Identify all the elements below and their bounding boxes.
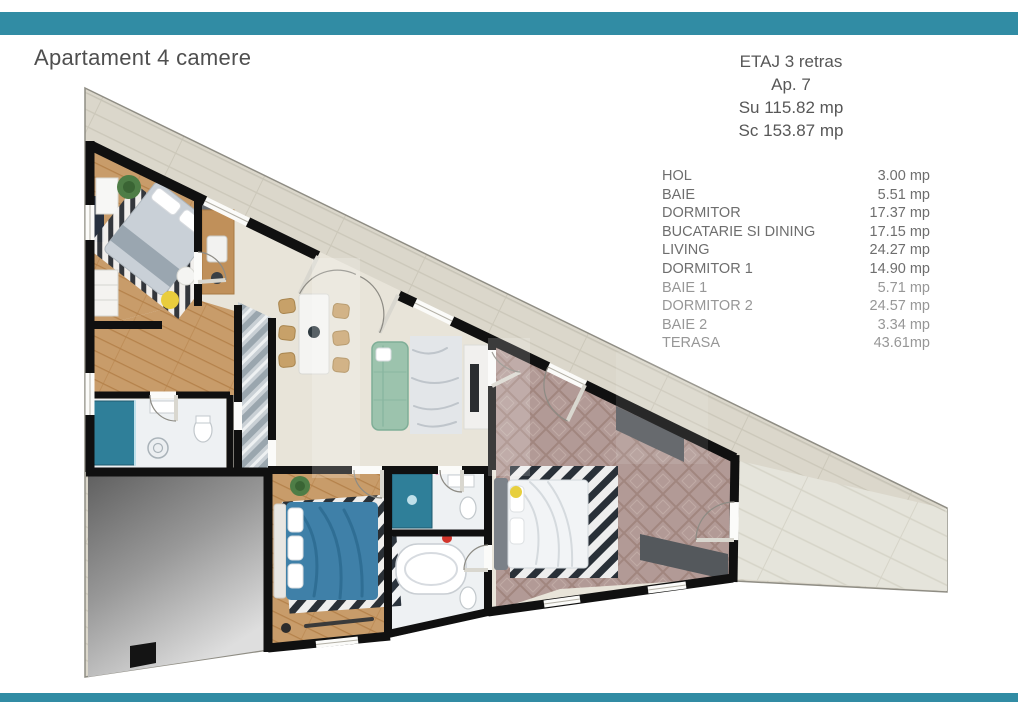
room-area: 3.34 mp bbox=[878, 316, 930, 335]
room-label: DORMITOR 2 bbox=[662, 297, 753, 316]
room-label: LIVING bbox=[662, 241, 710, 260]
plan-header: ETAJ 3 retras Ap. 7 Su 115.82 mp Sc 153.… bbox=[660, 50, 922, 142]
room-area: 5.71 mp bbox=[878, 279, 930, 298]
room-label: BAIE bbox=[662, 186, 695, 205]
bed-pillow bbox=[288, 508, 303, 532]
room-list-row: BAIE 5.51 mp bbox=[662, 186, 930, 205]
room-list-row: BAIE 1 5.71 mp bbox=[662, 279, 930, 298]
toilet bbox=[460, 497, 476, 519]
door-leaf bbox=[198, 280, 226, 282]
room-area: 17.15 mp bbox=[870, 223, 930, 242]
header-usable-area: Su 115.82 mp bbox=[660, 96, 922, 119]
room-label: BAIE 2 bbox=[662, 316, 707, 335]
room-hol-floor bbox=[238, 302, 272, 470]
header-apartment-number: Ap. 7 bbox=[660, 73, 922, 96]
washing-machine bbox=[148, 438, 168, 458]
living-rug bbox=[410, 336, 462, 434]
shower bbox=[93, 401, 135, 465]
bed-pillow bbox=[288, 536, 303, 560]
room-area: 5.51 mp bbox=[878, 186, 930, 205]
room-label: TERASA bbox=[662, 334, 720, 353]
bed-pillow bbox=[510, 518, 524, 544]
room-list-row: LIVING 24.27 mp bbox=[662, 241, 930, 260]
sofa-pillow bbox=[376, 348, 391, 361]
room-area: 24.27 mp bbox=[870, 241, 930, 260]
kitchen-shelf bbox=[92, 270, 118, 316]
closet bbox=[96, 178, 118, 214]
room-label: DORMITOR 1 bbox=[662, 260, 753, 279]
yellow-chair bbox=[161, 291, 179, 309]
room-area: 43.61mp bbox=[874, 334, 930, 353]
room-label: BUCATARIE SI DINING bbox=[662, 223, 815, 242]
room-list-row: HOL 3.00 mp bbox=[662, 167, 930, 186]
dorm1-headboard bbox=[274, 504, 286, 598]
bathtub bbox=[396, 544, 466, 594]
yellow-cushion bbox=[510, 486, 522, 498]
bottom-accent-bar bbox=[0, 693, 1018, 702]
toilet bbox=[460, 587, 476, 609]
header-floor: ETAJ 3 retras bbox=[660, 50, 922, 73]
page-title: Apartament 4 camere bbox=[34, 45, 251, 71]
room-area: 24.57 mp bbox=[870, 297, 930, 316]
room-label: HOL bbox=[662, 167, 692, 186]
bed-pillow bbox=[288, 564, 303, 588]
room-list-row: BAIE 2 3.34 mp bbox=[662, 316, 930, 335]
bathroom-sink bbox=[150, 401, 176, 413]
room-list-row: DORMITOR 2 24.57 mp bbox=[662, 297, 930, 316]
stool bbox=[281, 623, 291, 633]
room-list-row: TERASA 43.61mp bbox=[662, 334, 930, 353]
room-list-row: BUCATARIE SI DINING 17.15 mp bbox=[662, 223, 930, 242]
room-list-row: DORMITOR 1 14.90 mp bbox=[662, 260, 930, 279]
plant bbox=[123, 181, 135, 193]
room-label: DORMITOR bbox=[662, 204, 741, 223]
room-label: BAIE 1 bbox=[662, 279, 707, 298]
dorm2-headboard bbox=[494, 478, 508, 570]
adjacent-gray-area bbox=[88, 470, 264, 677]
tv bbox=[470, 364, 479, 412]
top-accent-bar bbox=[0, 12, 1018, 35]
room-list-row: DORMITOR 17.37 mp bbox=[662, 204, 930, 223]
room-list: HOL 3.00 mp BAIE 5.51 mp DORMITOR 17.37 … bbox=[662, 167, 930, 353]
room-area: 14.90 mp bbox=[870, 260, 930, 279]
kitchen-table bbox=[177, 267, 195, 285]
room-area: 17.37 mp bbox=[870, 204, 930, 223]
room-area: 3.00 mp bbox=[878, 167, 930, 186]
kitchen-sink bbox=[207, 236, 227, 262]
header-built-area: Sc 153.87 mp bbox=[660, 119, 922, 142]
